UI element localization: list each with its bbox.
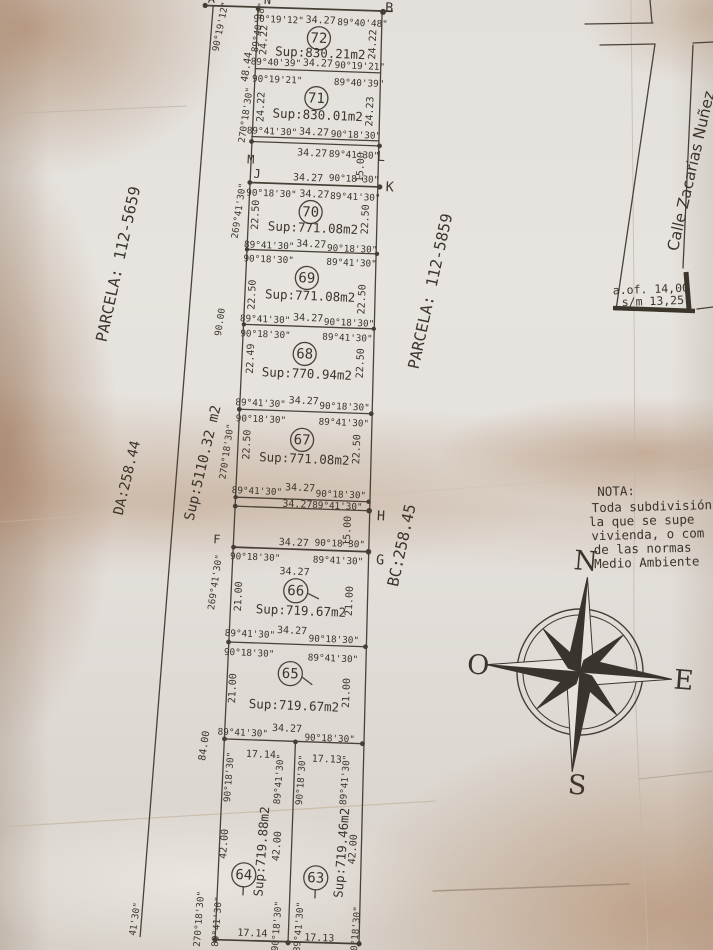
lot70-len-top: 34.27	[299, 189, 330, 201]
lot70-angle-br: 90°18'30"	[327, 243, 378, 256]
lot69-number: 69	[298, 270, 316, 287]
lot68-angle-bl: 89°41'30"	[235, 397, 286, 410]
lot72-angle-bl: 89°40'39"	[250, 56, 301, 69]
lot71-angle-bl: 89°41'30"	[247, 125, 298, 138]
paper-creases	[0, 0, 713, 950]
lot67-angle-bl: 89°41'30"	[231, 485, 282, 498]
plan-drawing: A N B M L J K H F G 90°19'12" 34.27 89°4…	[67, 0, 465, 950]
lot-63: 17.13 90°18'30" 89°41'30" 42.00 63 Sup:7…	[288, 752, 370, 950]
lot65-len-bottom: 34.27	[272, 723, 303, 735]
lot70-angle-tr: 89°41'30"	[330, 191, 381, 204]
lot66-angle-bl: 89°41'30"	[225, 628, 276, 641]
compass-east-label: E	[673, 664, 695, 696]
lot-65: 90°18'30" 89°41'30" 65 Sup:719.67m2 21.0…	[217, 647, 358, 746]
lot-boundary-lines	[140, 2, 398, 945]
lot70-outer-angle: 90°18'30"	[329, 173, 380, 186]
lot72-angle-br: 90°19'21"	[334, 60, 385, 73]
lot66-len-left: 21.00	[233, 581, 245, 612]
lot70-outer-len: 34.27	[293, 172, 324, 184]
lot65-len-left: 21.00	[227, 673, 239, 704]
lot71-len-right: 24.23	[364, 96, 376, 127]
lot64-len-left: 42.00	[218, 828, 231, 859]
lot65-angle-tl: 90°18'30"	[224, 647, 275, 660]
lot68-area: Sup:770.94m2	[261, 364, 352, 383]
point-g: G	[376, 552, 385, 568]
street-name-label: Calle Zacarias Nuñez	[664, 89, 713, 252]
lot72-len-bottom: 34.27	[303, 58, 334, 70]
lot63-len-top: 17.13	[311, 754, 342, 766]
lot72-len-top: 34.27	[305, 15, 336, 27]
lot67-west-angle: 270°18'30"	[218, 423, 237, 480]
lot65-circle-tail	[302, 677, 312, 684]
lot69-len-left: 22.50	[247, 279, 259, 310]
lot68-len-bottom: 34.27	[288, 395, 319, 407]
lot65-angle-tr: 89°41'30"	[308, 652, 359, 665]
point-h: H	[377, 508, 386, 524]
lot69-angle-bl: 89°41'30"	[240, 313, 291, 326]
lot64-angle-tl: 90°18'30"	[222, 752, 237, 803]
lot71-angle-tr: 89°40'39"	[334, 77, 385, 90]
dist-84: 84.00	[197, 730, 212, 761]
lot70-angle-tl: 90°18'30"	[246, 187, 297, 200]
nota-block: NOTA: Toda subdivisión la que se supe vi…	[588, 481, 713, 571]
lot64-west-angle: 270°18'30"	[192, 891, 207, 948]
lot70-len-bottom: 34.27	[296, 238, 327, 250]
parcela-east-label: PARCELA: 112-5859	[405, 212, 457, 371]
lot67-angle-tl: 90°18'30"	[236, 413, 287, 426]
da-length-label: DA:258.44	[111, 439, 144, 517]
lot66-outer-angle: 90°18'30"	[314, 538, 365, 551]
lot-72: 90°19'12" 34.27 89°40'48" 72 Sup:830.21m…	[250, 12, 388, 73]
point-j: J	[253, 167, 261, 181]
lot72-angle-tr: 89°40'48"	[337, 17, 388, 30]
lot66-west-angle: 269°41'30"	[206, 554, 225, 611]
lot-64: 17.14 90°18'30" 89°41'30" 42.00 42.00 64…	[192, 747, 291, 950]
lot-71: 90°19'21" 89°40'39" 71 Sup:830.01m2 24.2…	[246, 73, 385, 162]
lot-69: 90°18'30" 89°41'30" 69 Sup:771.08m2 22.5…	[213, 252, 377, 343]
lot66-len-bottom: 34.27	[277, 625, 308, 637]
lot68-angle-br: 90°18'30"	[319, 401, 370, 414]
lot68-len-right: 22.50	[355, 348, 367, 379]
lot69-angle-br: 90°18'30"	[324, 317, 375, 330]
survey-plan-svg: A N B M L J K H F G 90°19'12" 34.27 89°4…	[0, 0, 713, 950]
lot69-angle-tr: 89°41'30"	[326, 257, 377, 270]
lot64-len-top: 17.14	[246, 749, 277, 761]
compass-rose: N S E O	[457, 538, 703, 810]
compass-south-label: S	[567, 769, 588, 801]
point-b: B	[385, 0, 394, 16]
lot70-number: 70	[302, 204, 320, 221]
total-area-label: Sup:5110.32 m2	[182, 404, 225, 523]
compass-star	[478, 570, 679, 779]
lot71-angle-br: 90°18'30"	[330, 129, 381, 142]
lot70-angle-bl: 89°41'30"	[244, 239, 295, 252]
lot67-number: 67	[293, 432, 311, 449]
lot64-number: 64	[235, 867, 253, 884]
lot65-area: Sup:719.67m2	[249, 696, 340, 715]
lot64-angle-br: 90°18'30"	[270, 901, 285, 950]
lot67-len-right: 22.50	[351, 434, 363, 465]
lot64-angle-tr: 89°41'30"	[272, 754, 287, 805]
point-f: F	[213, 532, 221, 546]
lot67-len-bottom: 34.27	[285, 482, 316, 494]
lot69-len-right: 22.50	[356, 284, 368, 315]
lot66-angle-tr: 89°41'30"	[313, 554, 364, 567]
lot71-number: 71	[308, 90, 326, 107]
lot66-outer-len: 34.27	[278, 537, 309, 549]
west-dist-90: 90.00	[213, 307, 228, 336]
lot71-outer-len: 34.27	[297, 147, 328, 159]
bc-length-label: BC:258.45	[384, 502, 420, 588]
lot64-area: Sup:719.88m2	[250, 806, 272, 897]
lot64-len-bottom: 17.14	[237, 928, 268, 940]
point-k: K	[385, 179, 395, 195]
lot66-len-right: 21.00	[344, 586, 356, 617]
parcela-west-label: PARCELA: 112-5659	[93, 185, 145, 344]
street-zacarias-nunez: Calle Zacarias Nuñez a.of. 14,00 s/m 13,…	[585, 0, 713, 311]
lot70-len-right: 22.50	[360, 204, 372, 235]
lot65-angle-bl: 89°41'30"	[217, 727, 268, 740]
lot68-angle-tr: 89°41'30"	[322, 332, 373, 345]
nota-line-5: Medio Ambiente	[594, 553, 700, 571]
point-m: M	[247, 152, 255, 166]
lot66-area: Sup:719.67m2	[256, 601, 347, 620]
lot71-len-bottom: 34.27	[299, 127, 330, 139]
east-margin: PARCELA: 112-5859 BC:258.45	[384, 210, 457, 590]
lot67-angle-tr: 89°41'30"	[318, 417, 369, 430]
lot70-len-left: 22.50	[250, 200, 262, 231]
lot65-number: 65	[282, 666, 300, 683]
lot67-len-left: 22.50	[241, 429, 253, 460]
lot69-len-bottom: 34.27	[293, 312, 324, 324]
lot70-west-angle: 269°41'30"	[230, 182, 249, 239]
lot70-area: Sup:771.08m2	[268, 218, 359, 237]
lot63-number: 63	[307, 870, 325, 887]
lot64-len-right: 42.00	[271, 831, 284, 862]
lot71-angle-tl: 90°19'21"	[252, 73, 303, 86]
lot71-len-left: 24.22	[255, 92, 267, 123]
compass-west-label: O	[466, 649, 491, 682]
lot-68: 90°18'30" 89°41'30" 68 Sup:770.94m2 22.4…	[235, 328, 373, 414]
lot69-angle-tl: 90°18'30"	[243, 253, 294, 266]
lot66-angle-tl: 90°18'30"	[230, 551, 281, 564]
compass-north-label: N	[573, 545, 599, 578]
lot69-area: Sup:771.08m2	[265, 286, 356, 305]
lot66-len-top: 34.27	[279, 566, 310, 578]
lot63-angle-tl: 90°18'30"	[294, 755, 309, 806]
lot68-angle-tl: 90°18'30"	[240, 328, 291, 341]
west-margin: 90°19'12" 89°40'48" 48.44 270°18'30" PAR…	[68, 0, 268, 940]
lot66-circle-tail	[307, 593, 318, 598]
scanned-survey-plan-photo: { "west_side": { "parcela": "PARCELA: 11…	[0, 0, 713, 950]
lot65-len-right: 21.00	[341, 678, 353, 709]
street-measured-width: s/m 13,25	[621, 293, 684, 309]
lot68-number: 68	[296, 346, 314, 363]
lot67-outer-len: 34.27	[282, 499, 313, 511]
lot72-len-right: 24.22	[367, 29, 379, 60]
lot65-angle-br: 90°18'30"	[304, 732, 355, 745]
lot71-outer-angle: 89°41'30"	[329, 149, 380, 162]
lot66-angle-br: 90°18'30"	[308, 633, 359, 646]
lot67-outer-angle: 89°41'30"	[312, 500, 363, 513]
nota-heading: NOTA:	[597, 483, 635, 499]
lot71-area: Sup:830.01m2	[272, 105, 363, 124]
lot63-len-bottom: 17.13	[304, 932, 335, 944]
lot66-number: 66	[287, 583, 305, 600]
lot68-len-left: 22.49	[245, 343, 257, 374]
lot67-area: Sup:771.08m2	[259, 449, 350, 468]
